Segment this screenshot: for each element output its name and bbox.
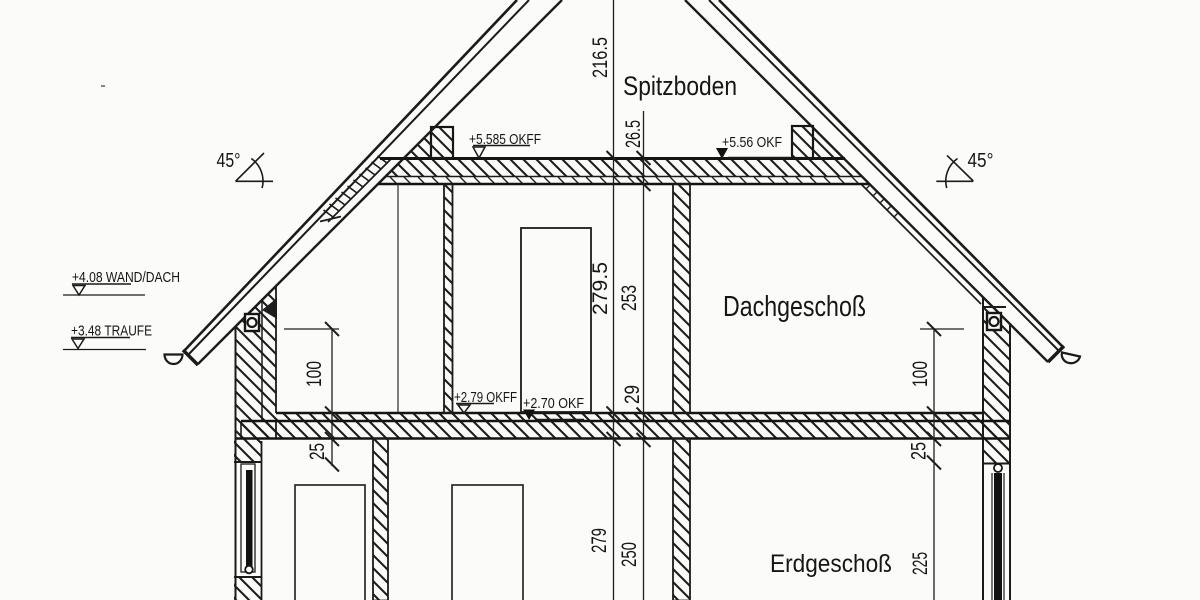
svg-text:+5.56 OKF: +5.56 OKF xyxy=(722,135,782,151)
svg-text:Dachgeschoß: Dachgeschoß xyxy=(723,291,866,323)
svg-text:279: 279 xyxy=(588,528,611,553)
svg-text:45°: 45° xyxy=(968,150,994,172)
svg-text:225: 225 xyxy=(909,552,932,575)
svg-text:45°: 45° xyxy=(217,150,241,172)
svg-text:Erdgeschoß: Erdgeschoß xyxy=(770,550,892,578)
svg-text:250: 250 xyxy=(618,542,641,567)
svg-text:216.5: 216.5 xyxy=(589,37,612,78)
svg-text:253: 253 xyxy=(618,285,641,311)
svg-text:25: 25 xyxy=(908,442,931,460)
svg-text:100: 100 xyxy=(303,361,326,387)
svg-text:26.5: 26.5 xyxy=(622,120,645,148)
svg-text:29: 29 xyxy=(621,385,644,404)
svg-text:25: 25 xyxy=(306,443,329,460)
svg-text:Spitzboden: Spitzboden xyxy=(623,71,737,101)
svg-text:100: 100 xyxy=(909,361,932,387)
svg-text:279.5: 279.5 xyxy=(589,262,612,315)
